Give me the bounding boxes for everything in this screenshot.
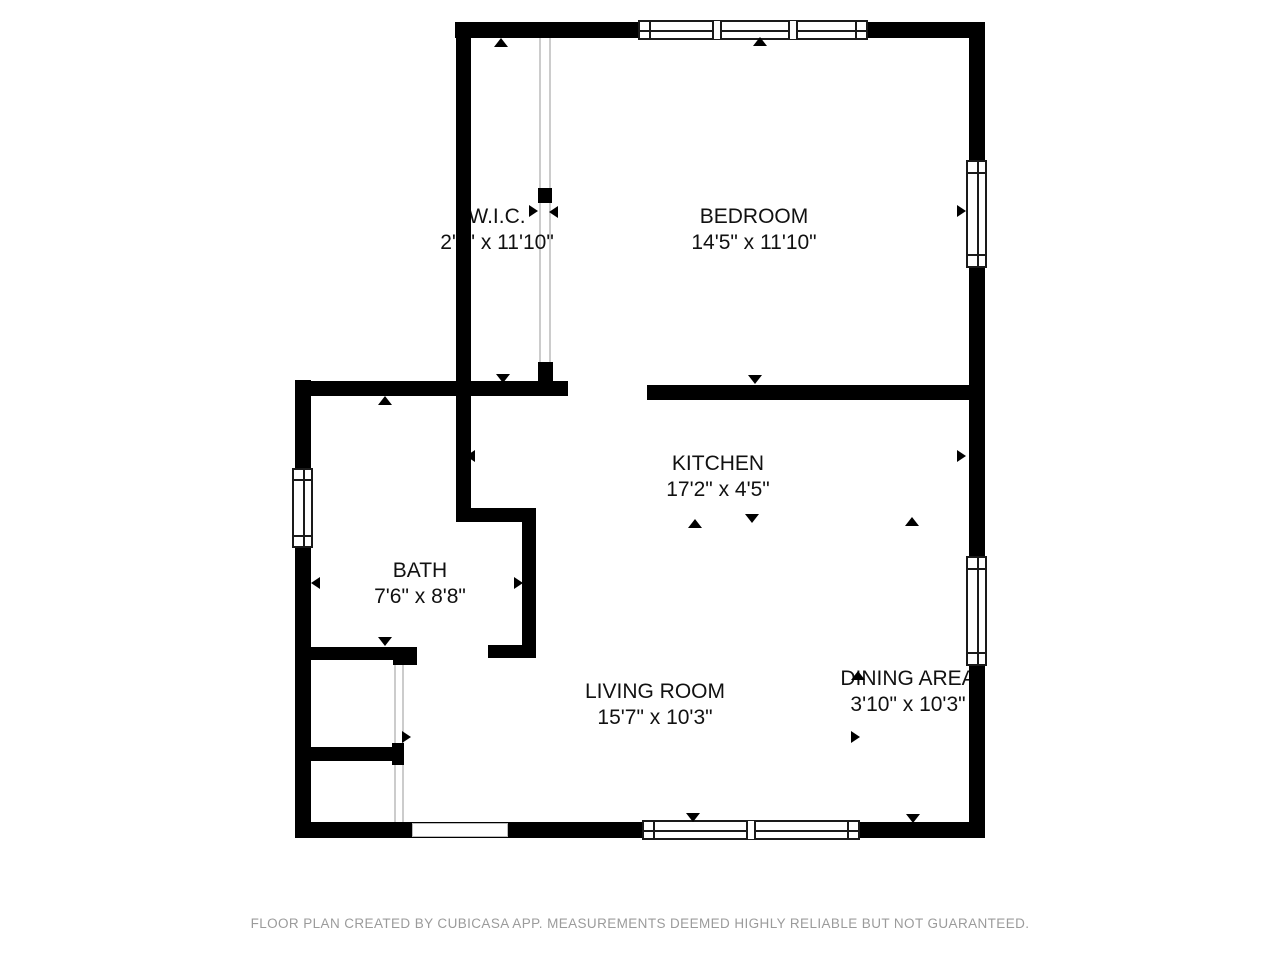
window-frame-line — [653, 822, 655, 838]
room-dimensions: 15'7" x 10'3" — [545, 705, 765, 731]
wall-right — [969, 22, 985, 838]
window-frame-line — [968, 254, 985, 256]
entry-door-opening — [412, 823, 508, 837]
wall-closet-post — [392, 743, 404, 765]
marker-triangle-icon — [378, 637, 392, 646]
marker-triangle-icon — [851, 731, 860, 743]
marker-triangle-icon — [905, 517, 919, 526]
marker-triangle-icon — [496, 374, 510, 383]
window-frame-line — [294, 479, 311, 481]
wall-bath-door-post — [393, 647, 417, 665]
wall-left-lower-section — [295, 380, 311, 838]
room-name: BEDROOM — [654, 204, 854, 230]
window-pane-line — [977, 162, 979, 266]
window-pane-line — [977, 558, 979, 664]
marker-triangle-icon — [957, 205, 966, 217]
footer-disclaimer: FLOOR PLAN CREATED BY CUBICASA APP. MEAS… — [0, 916, 1280, 931]
marker-triangle-icon — [745, 514, 759, 523]
wall-kitchen-top — [647, 385, 969, 400]
marker-triangle-icon — [378, 396, 392, 405]
window-dining-right — [966, 556, 987, 666]
room-label-living-room: LIVING ROOM 15'7" x 10'3" — [545, 679, 765, 731]
window-pane-line — [640, 30, 866, 32]
room-label-kitchen: KITCHEN 17'2" x 4'5" — [618, 451, 818, 503]
window-frame-line — [847, 822, 849, 838]
marker-triangle-icon — [748, 375, 762, 384]
window-frame-line — [968, 652, 985, 654]
window-mullion — [746, 821, 756, 839]
marker-triangle-icon — [466, 450, 475, 462]
floor-plan-canvas: W.I.C. 2'5" x 11'10" BEDROOM 14'5" x 11'… — [0, 0, 1280, 960]
marker-triangle-icon — [688, 519, 702, 528]
wall-closet-middle — [311, 747, 392, 761]
room-name: LIVING ROOM — [545, 679, 765, 705]
wall-left-upper-section — [456, 22, 471, 522]
marker-triangle-icon — [851, 671, 865, 680]
room-dimensions: 2'5" x 11'10" — [397, 230, 597, 256]
marker-triangle-icon — [906, 814, 920, 823]
marker-triangle-icon — [549, 206, 558, 218]
window-frame-line — [968, 172, 985, 174]
room-name: W.I.C. — [397, 204, 597, 230]
marker-triangle-icon — [686, 813, 700, 822]
room-name: BATH — [330, 558, 510, 584]
window-bedroom-right — [966, 160, 987, 268]
room-name: KITCHEN — [618, 451, 818, 477]
window-mullion — [788, 21, 798, 39]
window-bath-left — [292, 468, 313, 548]
room-dimensions: 17'2" x 4'5" — [618, 477, 818, 503]
room-label-bedroom: BEDROOM 14'5" x 11'10" — [654, 204, 854, 256]
marker-triangle-icon — [753, 37, 767, 46]
partition-wic-base — [538, 362, 553, 383]
wall-bath-right — [522, 508, 536, 658]
window-frame-line — [649, 22, 651, 38]
room-dimensions: 14'5" x 11'10" — [654, 230, 854, 256]
marker-triangle-icon — [311, 577, 320, 589]
marker-triangle-icon — [957, 450, 966, 462]
wall-bath-top — [295, 381, 568, 396]
room-label-bath: BATH 7'6" x 8'8" — [330, 558, 510, 610]
room-label-wic: W.I.C. 2'5" x 11'10" — [397, 204, 597, 256]
marker-triangle-icon — [494, 38, 508, 47]
wall-bath-bottom-left — [311, 647, 393, 660]
window-mullion — [712, 21, 722, 39]
room-dimensions: 7'6" x 8'8" — [330, 584, 510, 610]
marker-triangle-icon — [514, 577, 523, 589]
wall-bottom — [295, 822, 985, 838]
marker-triangle-icon — [529, 205, 538, 217]
marker-triangle-icon — [402, 731, 411, 743]
window-frame-line — [294, 535, 311, 537]
window-bottom-double — [642, 820, 860, 840]
wall-bath-bottom-right — [488, 645, 536, 658]
window-frame-line — [968, 568, 985, 570]
window-frame-line — [855, 22, 857, 38]
partition-wic-stub — [538, 188, 552, 203]
